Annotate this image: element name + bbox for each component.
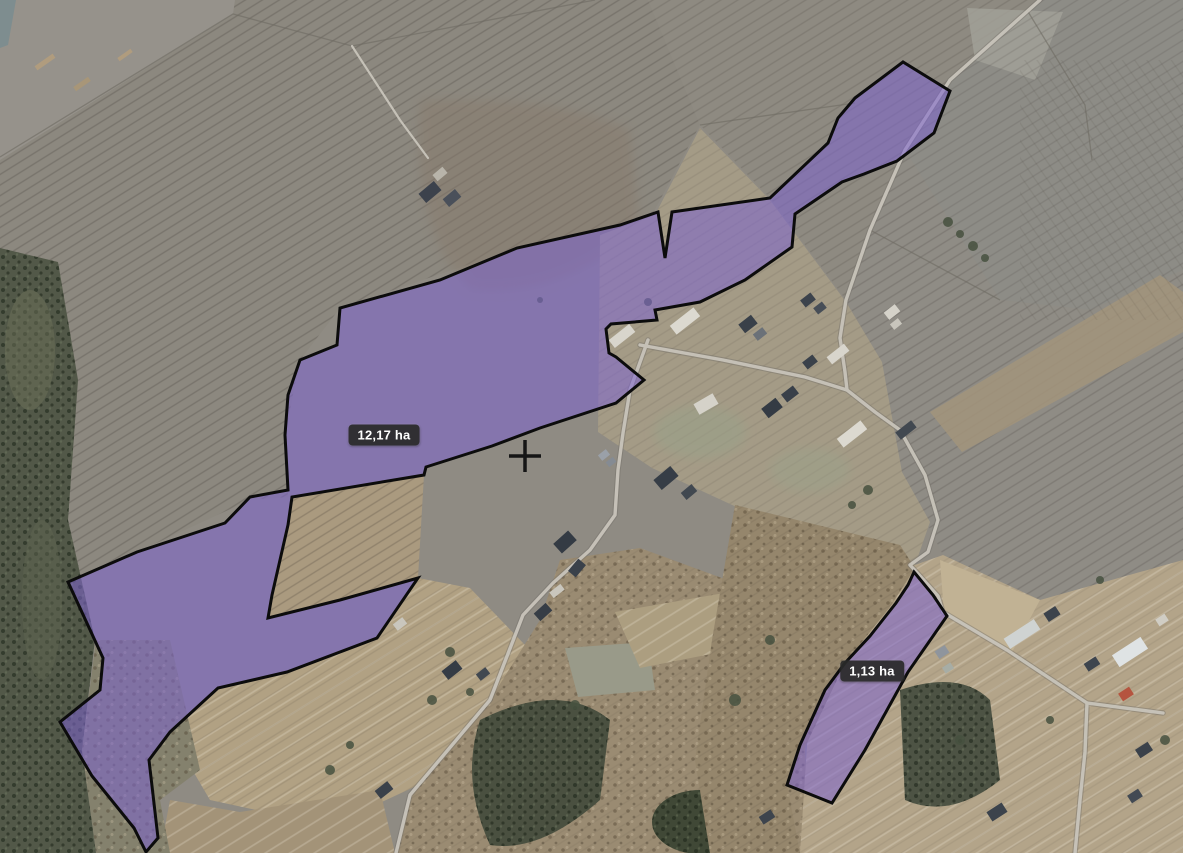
area-label-large-parcel: 12,17 ha	[349, 425, 420, 446]
area-label-strip-parcel: 1,13 ha	[840, 661, 904, 682]
aerial-map	[0, 0, 1183, 853]
map-canvas[interactable]: 12,17 ha 1,13 ha	[0, 0, 1183, 853]
